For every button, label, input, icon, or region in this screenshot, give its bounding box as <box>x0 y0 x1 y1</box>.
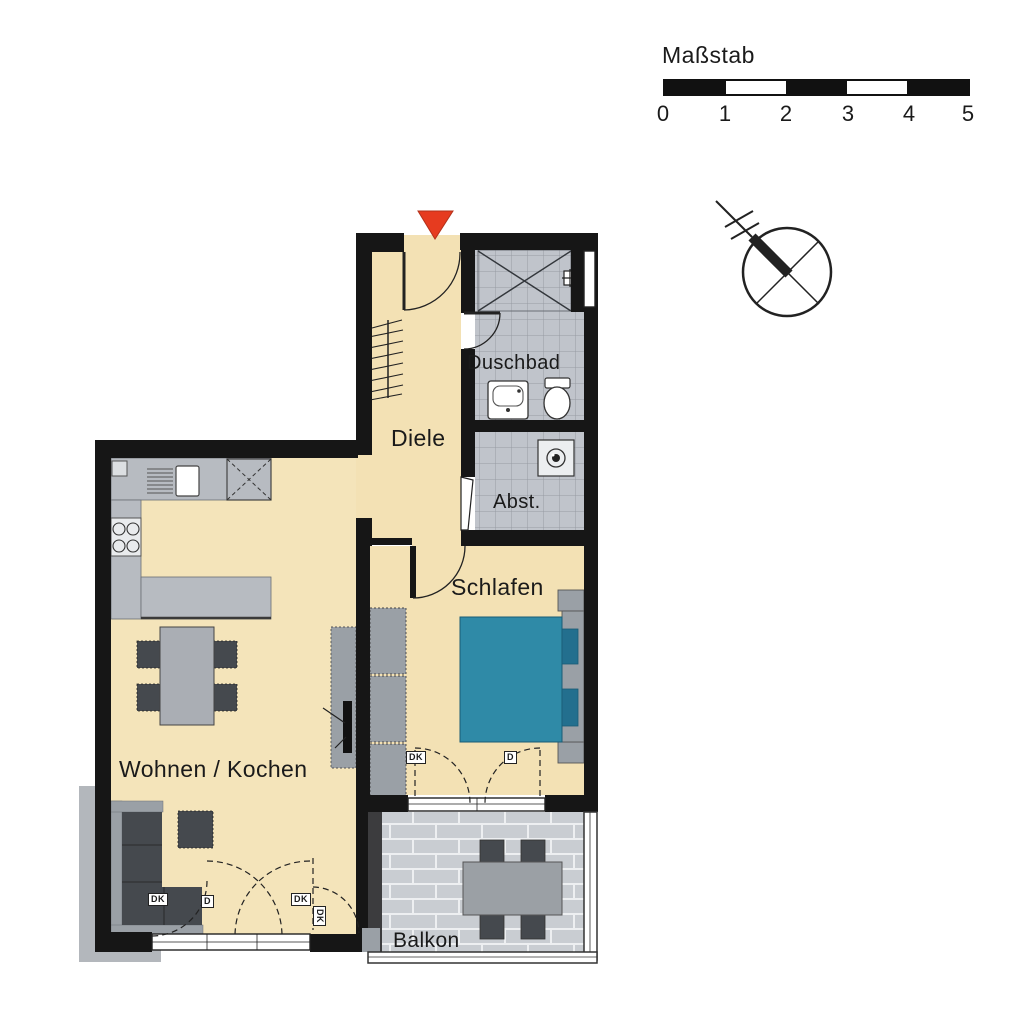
scale-bar-segment <box>907 81 968 94</box>
scale-bar-segment <box>847 81 908 94</box>
bedroom-door-leaf <box>410 546 416 598</box>
scale-bar-segment <box>726 81 787 94</box>
scale-tick: 3 <box>836 101 860 127</box>
scale-bar-title: Maßstab <box>662 42 755 69</box>
compass-icon <box>716 201 831 316</box>
pillow <box>562 689 578 726</box>
wardrobe <box>370 608 406 806</box>
bathroom-window <box>584 251 595 307</box>
ottoman <box>178 811 213 848</box>
scale-tick: 2 <box>774 101 798 127</box>
cooktop-icon <box>111 518 141 556</box>
room-label-duschbad: Duschbad <box>467 352 560 375</box>
window-marker: DK <box>148 893 168 906</box>
scale-bar-segment <box>665 81 726 94</box>
washing-machine-icon <box>538 440 574 476</box>
room-label-wohnen-kochen: Wohnen / Kochen <box>119 756 307 783</box>
scale-tick: 1 <box>713 101 737 127</box>
washbasin-icon <box>488 381 528 419</box>
window-marker: D <box>504 751 517 764</box>
room-label-diele: Diele <box>391 425 445 452</box>
window-marker: DK <box>313 906 326 926</box>
room-label-balkon: Balkon <box>393 929 460 953</box>
window-marker: D <box>201 895 214 908</box>
tv-icon <box>343 701 352 753</box>
scale-tick: 4 <box>897 101 921 127</box>
scale-bar-graphic <box>663 79 970 96</box>
balcony-railing <box>584 812 597 960</box>
scale-tick: 0 <box>651 101 675 127</box>
balcony-railing <box>368 952 597 963</box>
window-marker: DK <box>291 893 311 906</box>
scale-bar-segment <box>786 81 847 94</box>
kitchen-tall-unit-icon <box>227 459 271 500</box>
toilet-icon <box>544 378 570 419</box>
scale-tick: 5 <box>956 101 980 127</box>
storage-door-leaf <box>461 477 473 530</box>
shower <box>478 250 579 311</box>
bedroom-balcony-door-band <box>408 798 545 811</box>
room-label-schlafen: Schlafen <box>451 574 544 601</box>
kitchen-corner-unit <box>112 461 127 476</box>
window-marker: DK <box>406 751 426 764</box>
pillow <box>562 629 578 664</box>
room-label-abstellraum: Abst. <box>493 491 541 514</box>
entrance-marker-icon <box>418 211 453 239</box>
floor-plan-page: Maßstab 0 1 2 3 4 5 Duschbad Abst. Diele… <box>0 0 1024 1020</box>
